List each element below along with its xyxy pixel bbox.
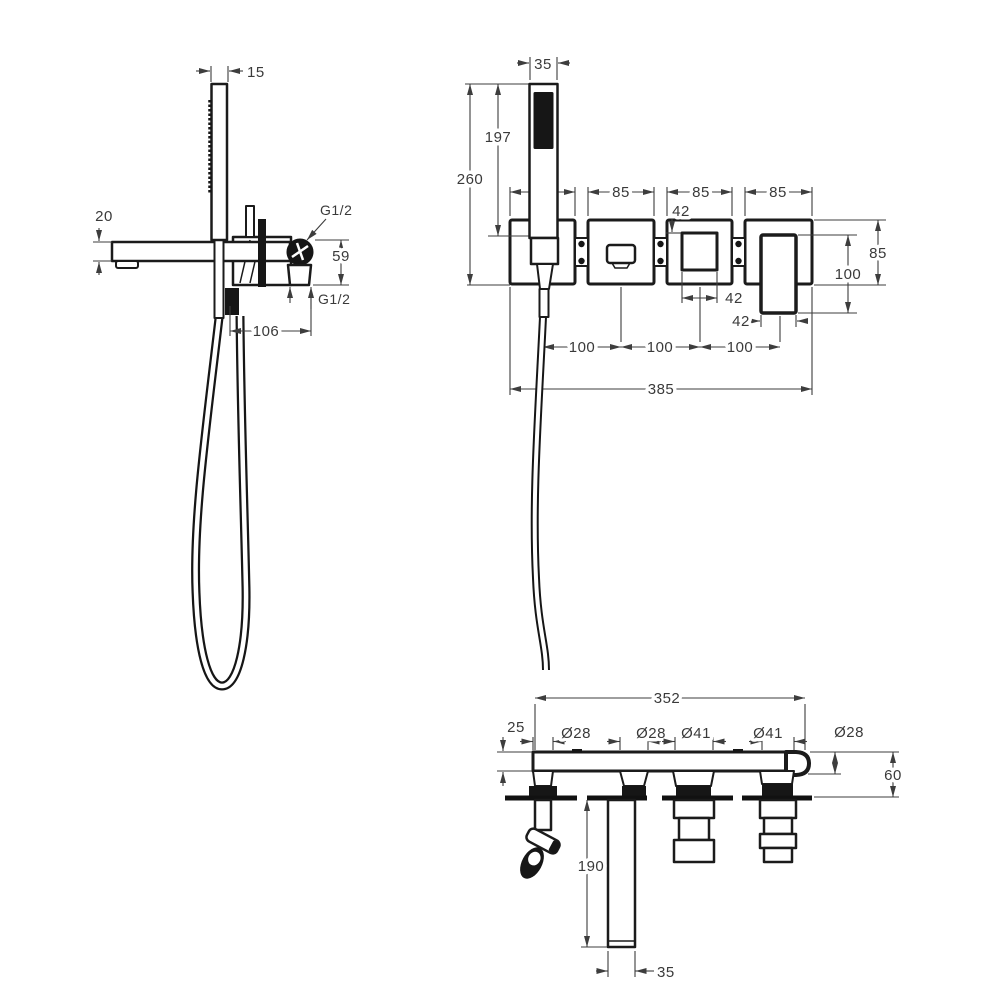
dim-wall-depth: 60	[884, 767, 902, 784]
holder-stem	[533, 771, 553, 786]
dim-hand-shower-width: 35	[534, 56, 552, 73]
plan-view: 352 25 Ø28 Ø28 Ø41	[497, 690, 902, 981]
shower-holder-front	[531, 238, 558, 264]
dim-diverter-width: 42	[725, 290, 743, 307]
dim-hand-shower-thickness: 15	[247, 64, 265, 81]
shower-handle-tube	[540, 289, 549, 317]
hand-shower-side	[212, 84, 228, 240]
cartridge-body-plan	[764, 818, 792, 834]
connector-screw	[735, 241, 741, 247]
technical-drawing-page: 15 20 G1/2 59 G1/2 106	[0, 0, 1000, 1000]
cartridge-stem	[760, 771, 794, 784]
dim-spacing-2: 100	[647, 339, 674, 356]
dim-handle-height: 100	[835, 266, 862, 283]
dim-plate4-width: 85	[769, 184, 787, 201]
connector-screw	[657, 258, 663, 264]
dim-plate-height: 85	[869, 245, 887, 262]
diverter-stem	[673, 771, 714, 786]
dim-diverter-diameter: Ø41	[681, 725, 711, 742]
plate-notch	[733, 749, 743, 753]
diverter-body-plan	[674, 840, 714, 862]
connector-screw	[578, 241, 584, 247]
shower-handle-taper	[537, 264, 553, 289]
spout-front	[607, 245, 635, 263]
plate-notch	[572, 749, 582, 753]
hand-shower-handle-side	[215, 240, 224, 318]
dim-outlet-diameter: Ø28	[834, 724, 864, 741]
dim-hand-shower-length: 197	[485, 129, 512, 146]
spout-body-plan	[608, 800, 635, 947]
dim-plate-thickness: 25	[507, 719, 525, 736]
spray-face-front	[534, 92, 554, 149]
hose-fitting	[225, 288, 239, 315]
cartridge-body-plan	[760, 800, 796, 818]
connector-screw	[578, 258, 584, 264]
dim-cartridge-diameter: Ø41	[753, 725, 783, 742]
dim-thread-bottom: G1/2	[318, 291, 350, 307]
connector-screw	[735, 258, 741, 264]
thread-port-side	[288, 265, 311, 285]
dim-spout-end-width: 35	[657, 964, 675, 981]
diverter-body-plan	[679, 818, 709, 840]
lever-handle-front	[761, 235, 796, 313]
holder-body-plan	[535, 800, 551, 830]
shower-hose-side	[196, 316, 247, 686]
dim-spacing-1: 100	[569, 339, 596, 356]
mixer-dimension-drawing: 15 20 G1/2 59 G1/2 106	[0, 0, 1000, 1000]
wall-plate-edge	[258, 219, 266, 287]
dim-plan-overall-width: 352	[654, 690, 681, 707]
spout-stem	[620, 771, 648, 786]
dim-overall-width: 385	[648, 381, 675, 398]
spout-nozzle	[116, 261, 138, 268]
dim-spout-length: 190	[578, 858, 605, 875]
dim-spout-diameter: Ø28	[636, 725, 666, 742]
cartridge-body-plan	[764, 848, 792, 862]
holder-stub-side	[246, 206, 254, 237]
cartridge-body-plan	[760, 834, 796, 848]
dim-handle-lever-width: 42	[732, 313, 750, 330]
dim-spout-projection: 106	[253, 323, 280, 340]
diverter-body-plan	[674, 800, 714, 818]
diverter-knob-front	[682, 233, 717, 270]
dim-plate3-width: 85	[692, 184, 710, 201]
dim-thread-top: G1/2	[320, 202, 352, 218]
dim-spacing-3: 100	[727, 339, 754, 356]
front-view-dim-35: 35	[517, 56, 570, 80]
dim-overall-height: 260	[457, 171, 484, 188]
side-view: 15 20 G1/2 59 G1/2 106	[93, 64, 352, 686]
connector-screw	[657, 241, 663, 247]
dim-diverter-height: 42	[672, 203, 690, 220]
front-view: 260 197 85 85 85 85 42 42	[457, 56, 887, 670]
dim-plate2-width: 85	[612, 184, 630, 201]
trim-plate-plan	[533, 752, 800, 771]
dim-body-height: 59	[332, 248, 350, 265]
dim-spout-height: 20	[95, 208, 113, 225]
dim-holder-diameter: Ø28	[561, 725, 591, 742]
